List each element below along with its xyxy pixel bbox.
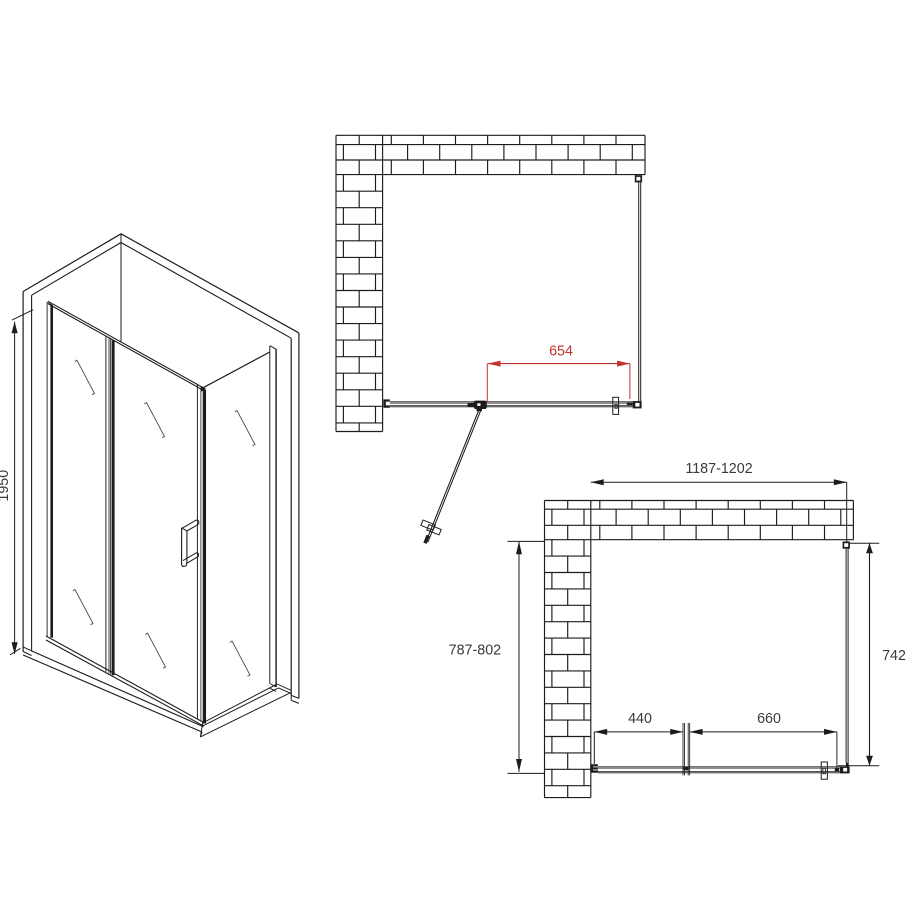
svg-text:654: 654 bbox=[549, 343, 573, 359]
svg-text:1187-1202: 1187-1202 bbox=[685, 461, 752, 477]
svg-text:787-802: 787-802 bbox=[449, 643, 502, 659]
svg-text:440: 440 bbox=[628, 711, 652, 727]
svg-text:1950: 1950 bbox=[0, 470, 12, 502]
svg-text:742: 742 bbox=[882, 648, 906, 664]
svg-text:660: 660 bbox=[757, 711, 781, 727]
